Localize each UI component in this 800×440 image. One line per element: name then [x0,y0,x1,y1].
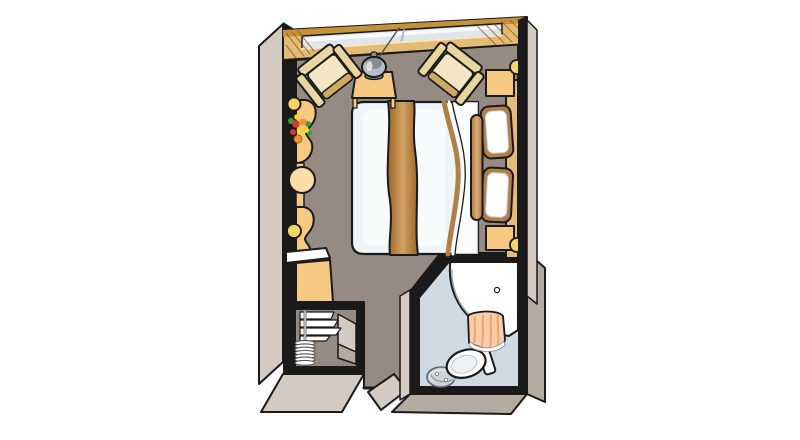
bathroom-bottom-wall-face [392,394,527,414]
pillow-1 [480,105,514,159]
sink-drain-dot [494,287,499,292]
wall-sconce-lamp-top [288,98,301,111]
bolster-pillow [471,115,483,220]
left-wall [259,22,296,384]
left-wall-face [259,24,283,384]
wardrobe-bottom-wall [283,366,364,374]
wardrobe-top-wall [283,302,364,310]
wardrobe-right-wall [356,302,364,374]
left-wall-core [283,22,296,374]
stateroom-floor-plan [0,0,800,440]
right-wall-face [527,20,537,304]
stool [289,167,315,193]
floor-plan-canvas [0,0,800,440]
right-wall [518,16,537,304]
bed-runner [388,101,418,255]
cabinet [296,260,333,302]
nightstand-top [486,70,514,96]
bathroom-left-wall-face [400,290,410,400]
coat-hangers [295,341,315,366]
wall-sconce-lamp-mid [287,224,301,238]
shower-curtain [468,311,505,351]
right-wall-core [518,16,527,298]
pillow-2 [481,167,514,222]
